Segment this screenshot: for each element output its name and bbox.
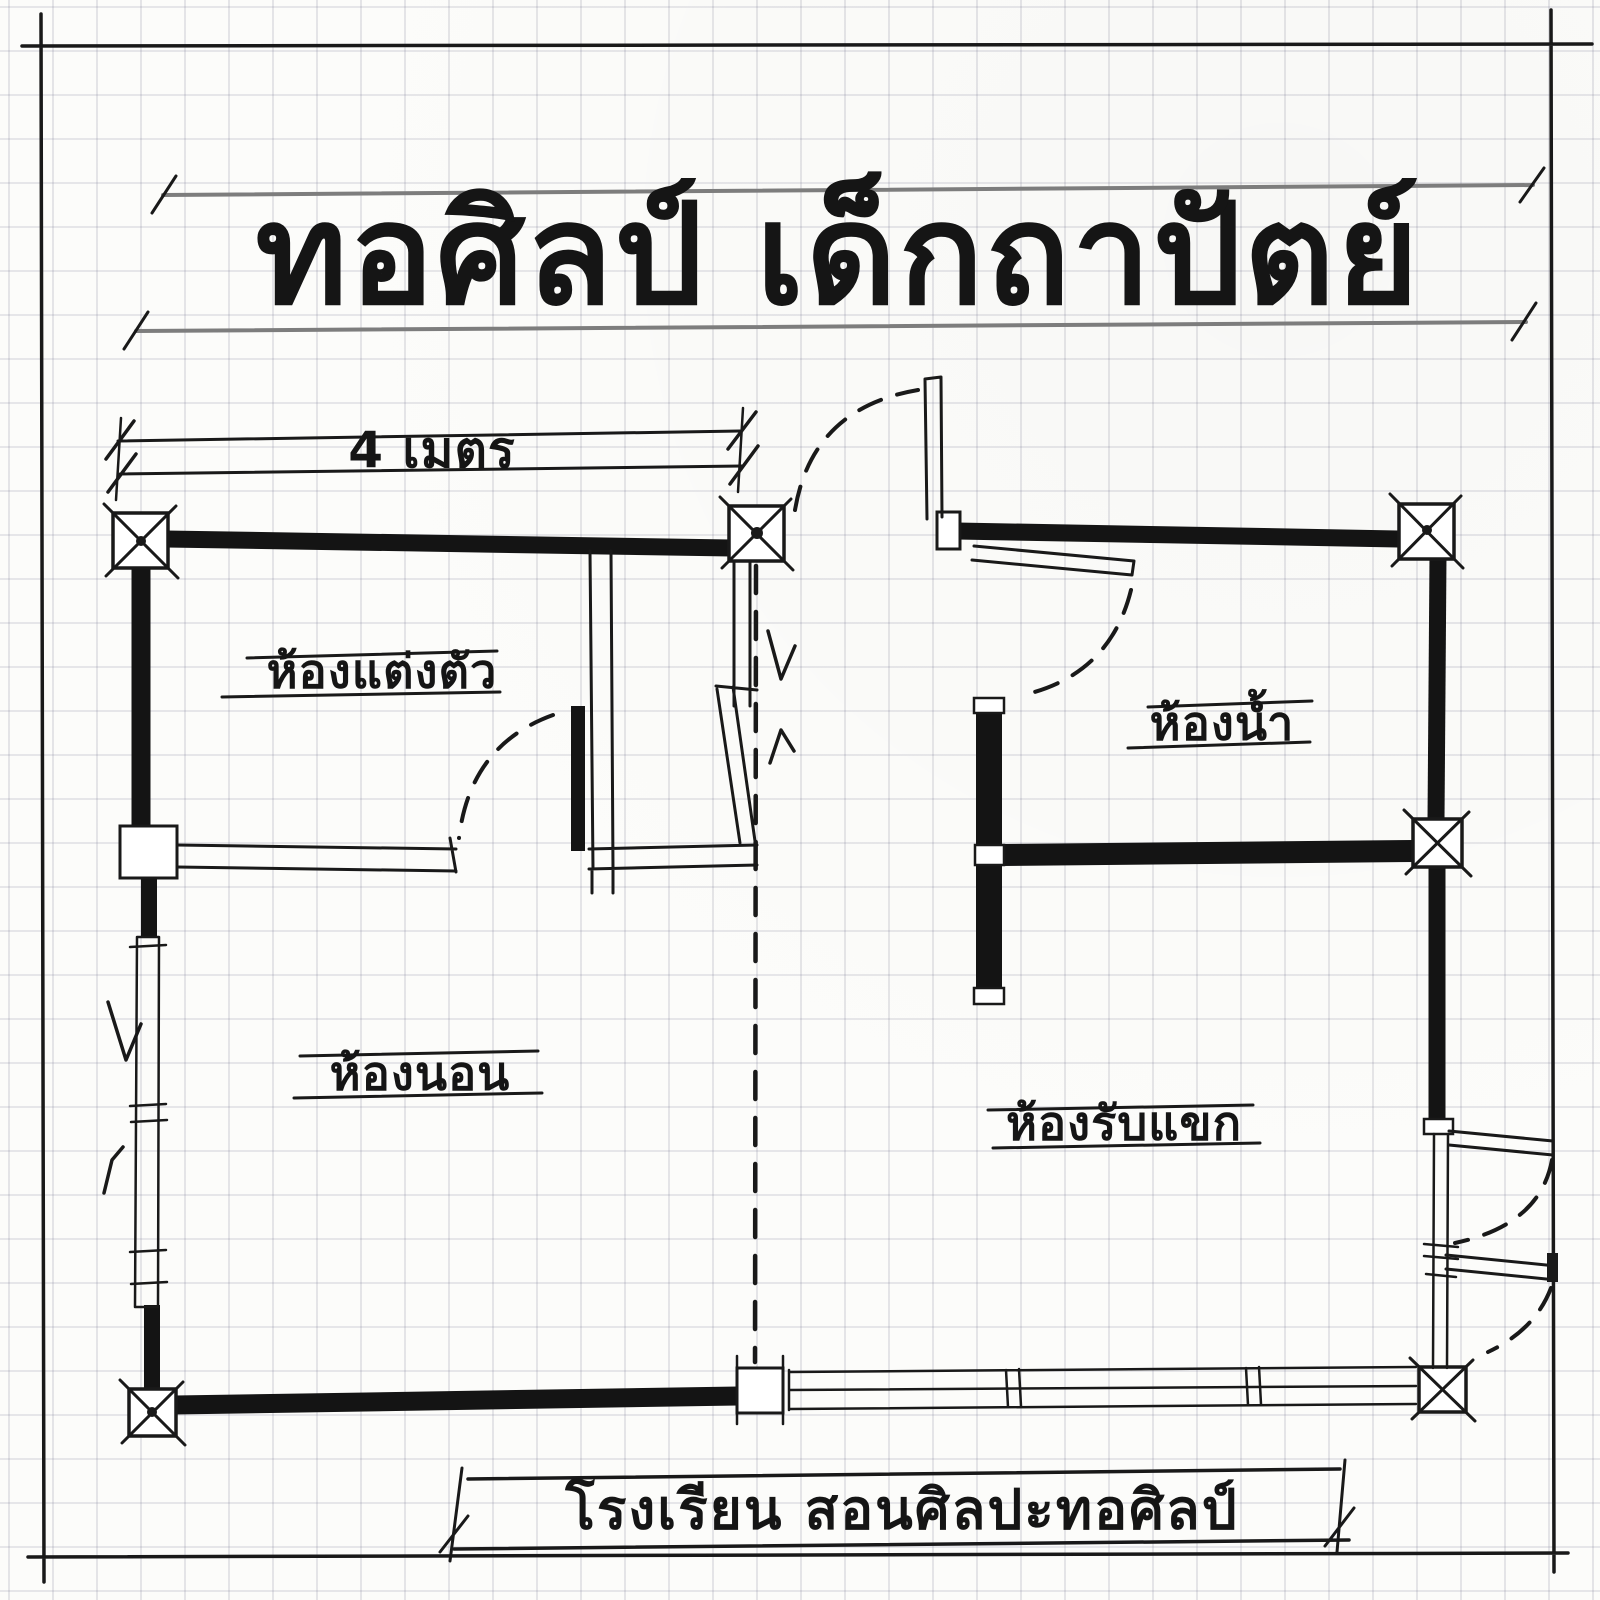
column-mid-right bbox=[1404, 810, 1471, 876]
column-top-right bbox=[1390, 494, 1463, 568]
door-leaf-cap bbox=[1547, 1253, 1558, 1282]
door-swing-arc bbox=[795, 390, 918, 510]
columns bbox=[104, 494, 1475, 1445]
page-title: ทอศิลป์ เด็กถาปัตย์ bbox=[255, 186, 1420, 326]
door-swing-arc bbox=[459, 715, 553, 838]
room-label-bathroom: ห้องน้ำ bbox=[1150, 701, 1295, 748]
door-frame-ticks bbox=[1424, 1244, 1458, 1277]
door-leaf bbox=[972, 546, 1134, 575]
door-leaves bbox=[1446, 1131, 1556, 1280]
column-top-left bbox=[104, 504, 178, 578]
tick-strokes bbox=[104, 631, 795, 1193]
room-label-bedroom: ห้องนอน bbox=[330, 1051, 511, 1098]
room-label-dressing-room: ห้องแต่งตัว bbox=[267, 649, 498, 696]
column-dot bbox=[136, 536, 146, 546]
divider-dashed-line bbox=[755, 566, 756, 1362]
wall-end-cap bbox=[974, 988, 1004, 1004]
partition-lines bbox=[177, 551, 757, 893]
entry-door-jamb bbox=[937, 512, 960, 549]
wall-junction-block bbox=[975, 845, 1004, 865]
caption-text: โรงเรียน สอนศิลปะทอศิลป์ bbox=[565, 1483, 1238, 1538]
column-dot bbox=[1422, 525, 1432, 535]
column-bottom-right bbox=[1410, 1358, 1475, 1421]
window-lines bbox=[789, 1367, 1416, 1410]
left-window bbox=[130, 937, 167, 1307]
room-label-living-room: ห้องรับแขก bbox=[1006, 1101, 1242, 1148]
column-bottom-left bbox=[120, 1380, 185, 1445]
column-top-center bbox=[720, 497, 793, 570]
entry-door bbox=[795, 377, 942, 519]
interior-partitions bbox=[177, 551, 757, 893]
dimension-label: 4 เมตร bbox=[348, 425, 516, 475]
wall-top-right bbox=[957, 531, 1401, 539]
graph-paper-page: ทอศิลป์ เด็กถาปัตย์ 4 เมตร ห้องแต่งตัว ห… bbox=[0, 0, 1600, 1600]
door-swing-arc bbox=[1023, 590, 1131, 695]
wall-right-upper bbox=[1436, 556, 1438, 820]
wall-end-cap bbox=[974, 698, 1004, 713]
left-wall-junction-block bbox=[120, 826, 177, 878]
door-leaf bbox=[925, 377, 942, 519]
bathroom-wall-horizontal bbox=[1002, 851, 1414, 855]
bathroom-door bbox=[972, 546, 1134, 695]
bottom-door-post bbox=[737, 1368, 783, 1413]
dressing-room-door bbox=[459, 706, 578, 851]
room-divider bbox=[755, 566, 756, 1362]
column-dot bbox=[751, 527, 763, 539]
door-frame bbox=[1433, 1134, 1448, 1368]
wall-top-left bbox=[166, 539, 731, 548]
wall-bottom bbox=[175, 1396, 738, 1405]
column-dot bbox=[147, 1407, 157, 1417]
sketch-tick-marks bbox=[104, 631, 795, 1193]
right-double-door bbox=[1424, 1131, 1558, 1368]
bottom-window bbox=[789, 1367, 1416, 1410]
